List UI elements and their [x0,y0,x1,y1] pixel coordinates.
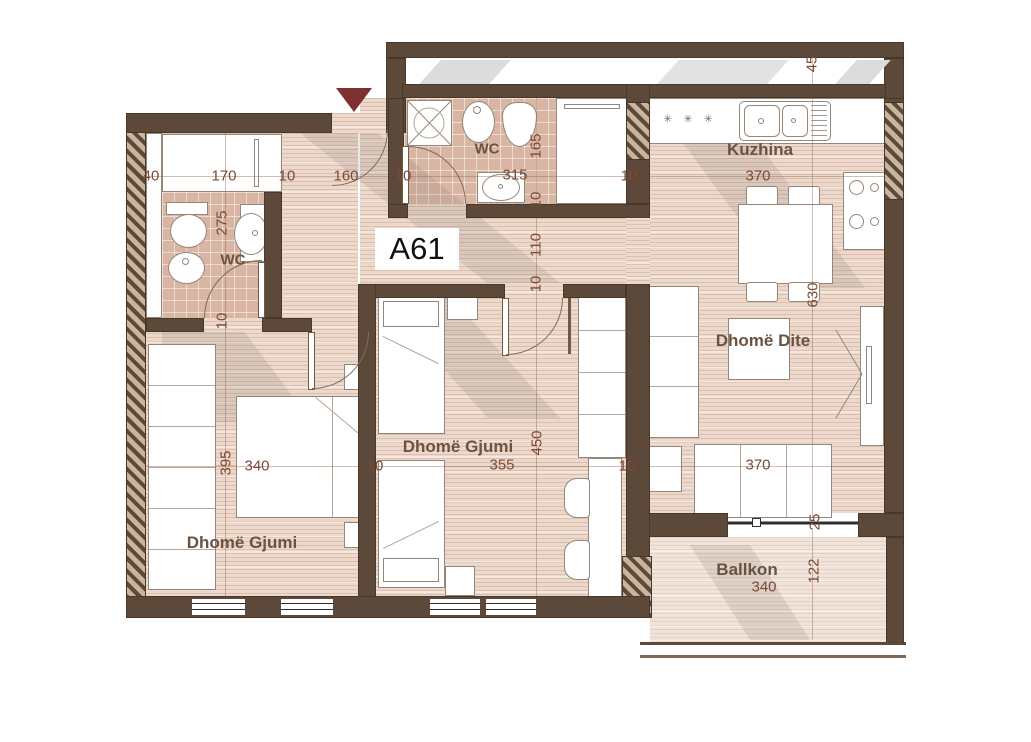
dim-10-a: 10 [279,168,296,185]
window-bedroom-left-2 [281,599,333,615]
wardrobe-left-seam-2 [149,426,215,427]
kitchen-marks: ✳ ✳ ✳ [663,113,717,126]
wall-strip-right-column [884,58,904,100]
room-label-living: Dhomë Dite [716,331,810,351]
window-bedroom-left-1 [192,599,245,615]
duct-shaft [146,133,162,318]
cabin-tray-line [564,104,620,109]
wall-step-block [858,513,904,537]
bidet-top-faucet [473,106,481,114]
room-label-balcony: Ballkon [716,560,777,580]
wall-bedroom-mid-right [626,284,650,598]
dim-315: 315 [502,167,527,184]
nightstand-mid-bottom [445,566,475,596]
wardrobe-left-seam-3 [149,467,215,468]
sink-drain-2 [791,118,796,123]
dim-25: 25 [807,514,824,531]
wall-left-exterior [126,113,146,613]
dim-10-d: 10 [367,458,384,475]
window-bedroom-mid-1 [430,599,480,615]
room-label-bedroom-left: Dhomë Gjumi [187,533,298,553]
window-bedroom-mid-2 [486,599,536,615]
washbasin-top-dot [498,184,503,189]
wall-strip-top [386,42,904,58]
mirror [254,139,259,187]
dim-630: 630 [805,282,822,307]
sofa-bottom-seam-2 [786,445,787,517]
dim-10-b: 10 [395,168,412,185]
toilet-bowl [170,214,207,248]
wall-wc-top-bottom-a [388,204,408,218]
floor-plan: ✳ ✳ ✳ [0,0,1031,742]
shower-x-icon [407,100,452,146]
dim-395: 395 [218,450,235,475]
balcony-door-handle [752,518,761,527]
dim-10-e: 10 [619,458,636,475]
room-label-bedroom-mid: Dhomë Gjumi [403,437,514,457]
dim-355: 355 [489,457,514,474]
strip-gray-patch-3 [835,60,891,84]
dim-165: 165 [528,133,545,158]
strip-gray-patch-1 [419,60,511,84]
room-label-wc-left: WC [221,252,246,269]
dim-122: 122 [806,558,823,583]
bidet [168,252,205,284]
shower-cabin [556,98,628,204]
wardrobe-left-seam-4 [149,508,215,509]
sofa-seam-2 [642,386,698,387]
dim-kitchen-370: 370 [745,168,770,185]
wall-wc-top-bottom-b [466,204,650,218]
desk-chair-2 [564,540,590,580]
sofa-bottom-seam-1 [740,445,741,517]
burner-2 [870,183,879,192]
wall-balcony-right [886,537,904,644]
room-label-kitchen: Kuzhina [727,140,793,160]
sink-drainboard [811,105,827,137]
dim-living-370: 370 [745,457,770,474]
sink-basin [234,213,268,255]
dimline-v-center [536,98,537,596]
dimline-v-left [225,133,226,596]
sink-faucet-dot [252,230,258,236]
bed-left-pillow-seam [332,397,333,517]
bed-mid-1-pillow [383,301,439,327]
wall-balcony-parapet [640,642,906,658]
entrance-arrow-icon [336,88,372,112]
desk-chair-1 [564,478,590,518]
wardrobe-rail [568,290,571,354]
dining-chair-1 [746,186,778,206]
bidet-drain [182,258,189,265]
wall-top-left [126,113,332,133]
burner-1 [849,180,864,195]
desk-mid [588,458,622,598]
dim-10-h: 10 [528,276,545,293]
wardrobe-mid-seam-1 [579,330,625,331]
dim-balcony-340: 340 [751,579,776,596]
wall-wc-left-right [264,192,282,318]
dim-275: 275 [214,210,231,235]
wall-hall-bottom-b [262,318,312,332]
dim-45: 45 [804,56,821,73]
dim-10-g: 10 [528,192,545,209]
tv-view-arrow-icon [836,330,864,422]
dining-chair-3 [746,282,778,302]
sink-drain-1 [758,118,764,124]
burner-3 [849,214,864,229]
wardrobe-left-seam-1 [149,385,215,386]
wardrobe-mid [578,288,626,458]
wall-duct-hatch [626,102,650,160]
dim-450: 450 [529,430,546,455]
dim-40: 40 [143,168,160,185]
bed-mid-2-pillow [383,558,439,582]
wardrobe-mid-seam-3 [579,414,625,415]
dim-110: 110 [528,233,545,257]
dim-10-c: 10 [621,168,638,185]
wall-bedroom-mid-top-b [563,284,626,298]
burner-4 [870,217,879,226]
sofa-seam-1 [642,336,698,337]
dim-10-f: 10 [214,313,231,330]
dim-340: 340 [244,458,269,475]
wall-right-hatch [884,102,904,200]
tv-screen [866,346,872,404]
strip-gray-patch-2 [657,60,789,84]
dining-chair-2 [788,186,820,206]
dim-160: 160 [333,168,358,185]
balcony-sliding-door [728,518,858,528]
wall-bedroom-mid-top-a [358,284,505,298]
dim-170: 170 [211,168,236,185]
wardrobe-mid-seam-2 [579,372,625,373]
unit-label: A61 [375,228,459,270]
dining-table [738,204,833,284]
dimline-v-right [812,58,813,640]
room-label-wc-top: WC [475,141,500,158]
wall-hall-bottom-a [146,318,204,332]
